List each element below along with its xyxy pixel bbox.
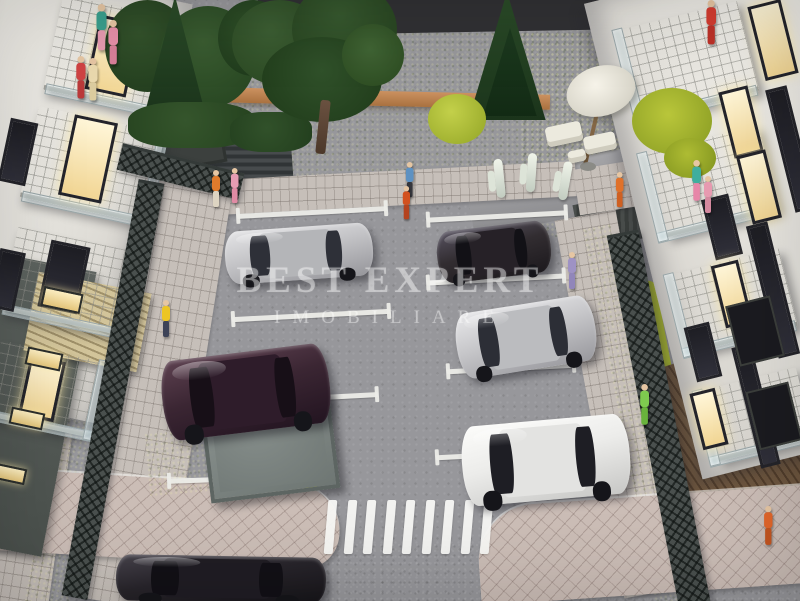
sculpture (520, 149, 539, 194)
figure-cream-left-window (86, 58, 100, 102)
figure-torso (76, 63, 85, 80)
figure-pink-right (702, 176, 714, 214)
figure-green-right-fence (638, 384, 651, 426)
figure-torso (212, 176, 220, 191)
tree-canopy (342, 24, 404, 86)
crosswalk-stripe (363, 500, 377, 554)
figure-pink-left-balcony (106, 20, 120, 66)
watermark-brand-text: BEST EXPERT (90, 262, 690, 299)
crosswalk-stripe (421, 500, 435, 554)
figure-legs (232, 188, 238, 203)
watermark-subtitle-text: IMOBILIARE (90, 307, 690, 329)
figure-head (98, 4, 106, 12)
figure-torso (692, 167, 701, 184)
figure-orange-bottom-corner (762, 506, 775, 546)
figure-legs (213, 191, 219, 207)
figure-head (89, 58, 96, 65)
figure-torso (704, 182, 712, 197)
figure-torso (764, 512, 772, 528)
figure-torso (97, 12, 107, 31)
car-dark-car-street (116, 554, 327, 601)
crosswalk-stripe (382, 500, 396, 554)
figure-legs (77, 80, 84, 98)
umbrella-base (580, 162, 596, 171)
figure-orange-shirt-top-left (210, 170, 222, 208)
car-rear-window (272, 356, 298, 418)
figure-head (110, 20, 117, 27)
deciduous-tree (222, 0, 412, 154)
figure-orange-right-path (614, 172, 625, 208)
figure-torso (706, 7, 716, 25)
crosswalk (324, 500, 504, 554)
bush-lime-center (428, 94, 486, 144)
figure-head (708, 0, 715, 7)
figure-torso (616, 178, 624, 192)
figure-red-walker-top (401, 186, 412, 220)
car-wheel (139, 593, 162, 601)
crosswalk-stripe (441, 500, 455, 554)
figure-head (77, 56, 84, 63)
figure-torso (406, 168, 414, 182)
scale-model-photo: BEST EXPERT IMOBILIARE (0, 0, 800, 601)
car-white-sedan-lower-right (459, 413, 633, 507)
figure-legs (98, 30, 106, 50)
figure-torso (403, 191, 410, 205)
figure-legs (693, 183, 700, 201)
figure-red-right-balcony (704, 0, 718, 46)
car-wheel (275, 595, 298, 601)
figure-legs (765, 528, 771, 545)
crosswalk-stripe (343, 500, 357, 554)
figure-legs (641, 407, 648, 425)
figure-pink-dress-top-left (229, 168, 240, 204)
figure-legs (617, 192, 623, 207)
figure-legs (705, 197, 711, 213)
figure-legs (110, 45, 117, 64)
car-rear-window (258, 562, 282, 597)
car-rear-window (573, 425, 597, 486)
figure-legs (404, 205, 409, 219)
car-wheel (483, 490, 503, 511)
figure-torso (108, 27, 118, 45)
figure-legs (708, 25, 715, 44)
crosswalk-stripe (402, 500, 416, 554)
figure-torso (231, 174, 239, 188)
figure-legs (89, 82, 96, 100)
watermark: BEST EXPERT IMOBILIARE (90, 262, 690, 329)
crosswalk-stripe (460, 500, 474, 554)
figure-torso (640, 391, 649, 408)
figure-torso (88, 65, 97, 82)
